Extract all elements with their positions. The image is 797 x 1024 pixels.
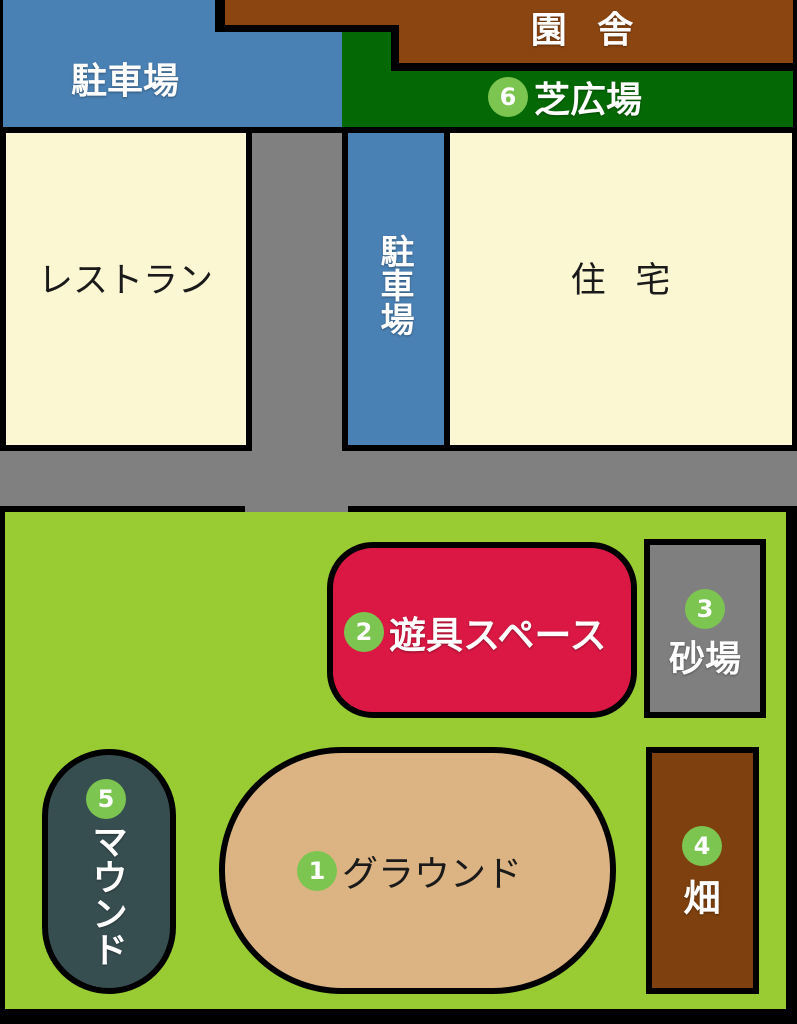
lawn-label-group: 6 芝広場 <box>488 77 642 117</box>
sandbox-text: 砂場 <box>669 630 741 682</box>
equipment-label-group: 2 遊具スペース <box>344 612 607 652</box>
mound-label-group: 5 マウンド <box>66 779 146 967</box>
sandbox-label-group: 3 砂場 <box>650 589 760 682</box>
road-horizontal <box>0 445 797 506</box>
lawn-number-badge: 6 <box>488 77 528 117</box>
building-label: 園舎 <box>457 4 707 50</box>
mound-number-badge: 5 <box>86 779 126 819</box>
ground-number-badge: 1 <box>297 851 337 891</box>
equipment-number-badge: 2 <box>344 612 384 652</box>
parking-center-label: 駐車場 <box>374 234 414 374</box>
parking-top-label: 駐車場 <box>40 57 210 99</box>
building-text: 園舎 <box>531 1 664 53</box>
parking-top-text: 駐車場 <box>71 52 179 104</box>
equipment-text: 遊具スペース <box>389 605 607 659</box>
housing-label: 住宅 <box>450 254 791 300</box>
crop-field-text: 畑 <box>684 868 721 922</box>
crop-field-number-badge: 4 <box>682 826 722 866</box>
crop-field-label-group: 4 畑 <box>662 826 742 922</box>
ground-label-group: 1 グラウンド <box>297 851 522 891</box>
grounds-map: 駐車場 園舎 6 芝広場 駐車場 レストラン 住宅 2 遊具スペース 3 砂場 … <box>0 0 797 1024</box>
restaurant-label: レストラン <box>5 254 246 300</box>
lawn-text: 芝広場 <box>534 71 642 123</box>
ground-text: グラウンド <box>342 845 522 897</box>
mound-text: マウンド <box>87 823 125 967</box>
sandbox-number-badge: 3 <box>685 589 725 629</box>
housing-text: 住宅 <box>571 252 701 303</box>
